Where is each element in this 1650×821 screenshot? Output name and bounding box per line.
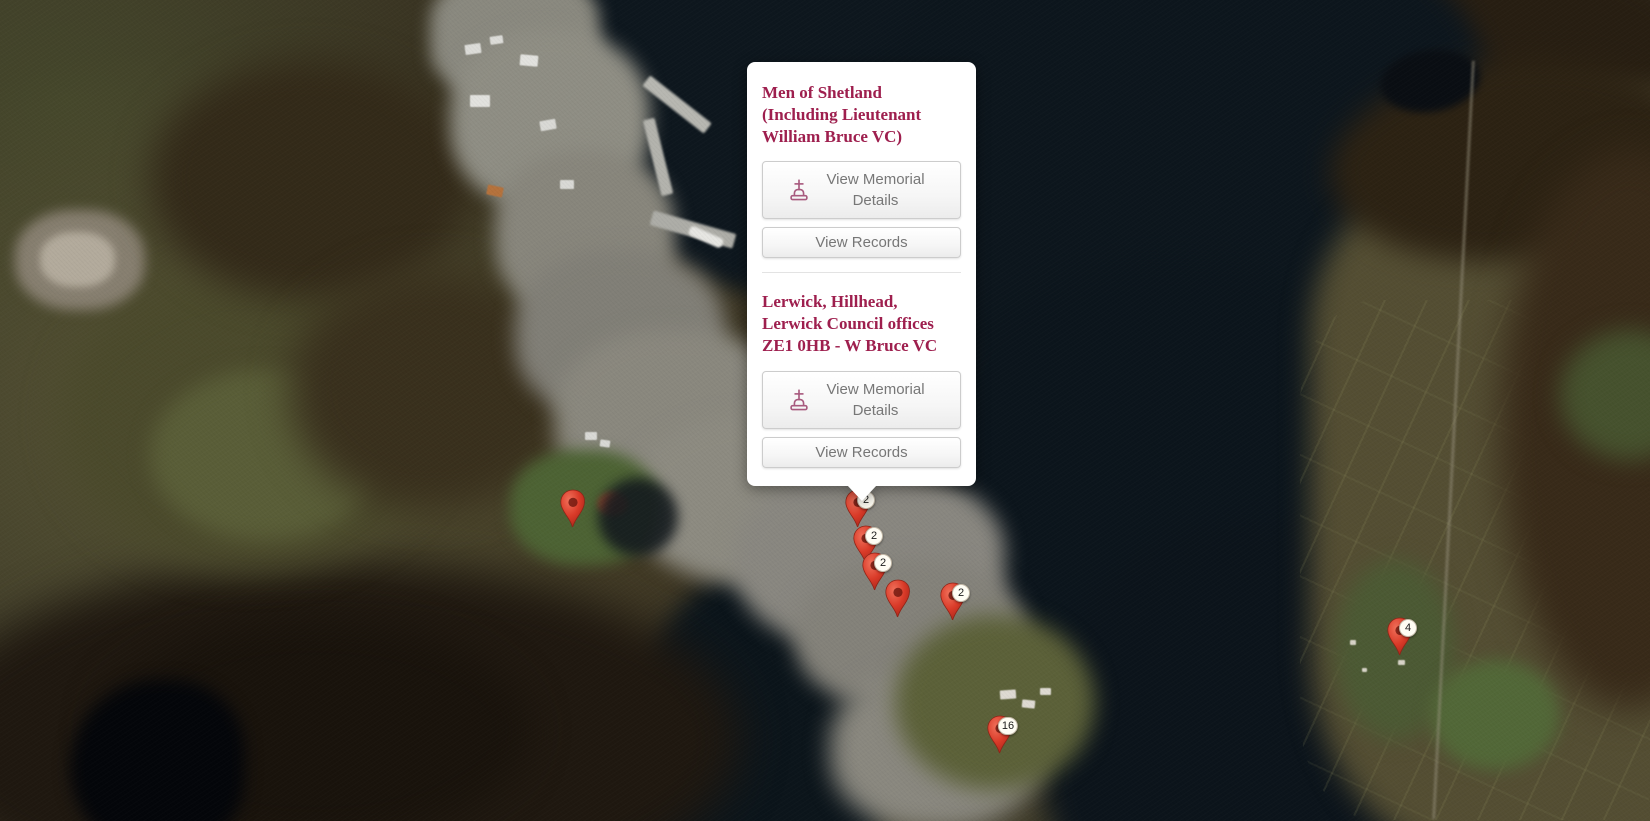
map-info-popup: Men of Shetland (Including Lieutenant Wi… xyxy=(747,62,976,501)
view-memorial-details-label: View Memorial Details xyxy=(815,379,937,421)
map-marker-cluster[interactable]: 16 xyxy=(987,715,1013,755)
popup-box: Men of Shetland (Including Lieutenant Wi… xyxy=(747,62,976,486)
marker-count-badge: 4 xyxy=(1399,619,1417,637)
view-memorial-details-button-2[interactable]: View Memorial Details xyxy=(762,371,961,429)
view-memorial-details-button-1[interactable]: View Memorial Details xyxy=(762,161,961,219)
view-records-button-2[interactable]: View Records xyxy=(762,437,961,468)
map-marker-cluster[interactable]: 2 xyxy=(940,582,966,622)
memorial-cross-icon xyxy=(787,178,811,202)
popup-tail-pointer xyxy=(847,485,877,501)
map-marker-cluster[interactable]: 4 xyxy=(1387,617,1413,657)
marker-count-badge: 16 xyxy=(998,717,1018,735)
memorial-title-1: Men of Shetland (Including Lieutenant Wi… xyxy=(762,82,961,148)
map-marker[interactable] xyxy=(560,489,586,529)
memorial-cross-icon xyxy=(787,388,811,412)
view-records-button-1[interactable]: View Records xyxy=(762,227,961,258)
map-canvas[interactable]: 2222416 Men of Shetland (Including Lieut… xyxy=(0,0,1650,821)
map-marker[interactable] xyxy=(885,579,911,619)
marker-count-badge: 2 xyxy=(865,527,883,545)
memorial-title-2: Lerwick, Hillhead, Lerwick Council offic… xyxy=(762,291,961,357)
marker-count-badge: 2 xyxy=(874,554,892,572)
view-memorial-details-label: View Memorial Details xyxy=(815,169,937,211)
popup-section-divider xyxy=(762,272,961,273)
marker-count-badge: 2 xyxy=(952,584,970,602)
